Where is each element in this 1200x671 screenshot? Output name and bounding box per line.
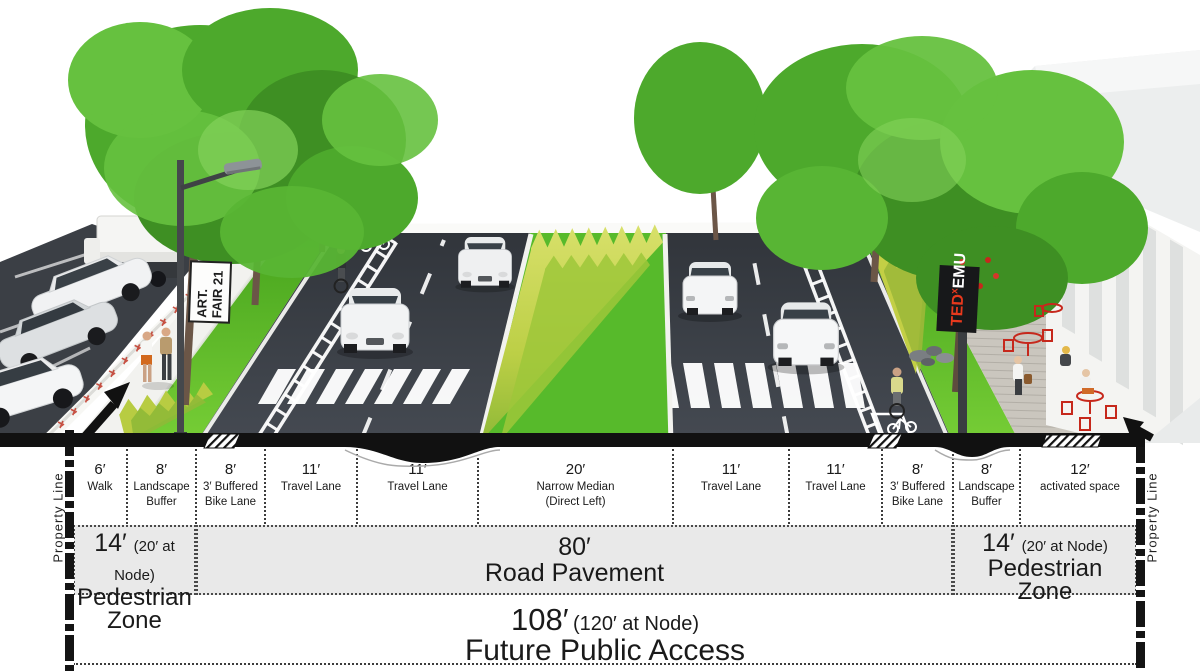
lane-bike-lane-right: 8′ 3′ Buffered Bike Lane <box>882 452 953 524</box>
cyclist <box>335 246 348 293</box>
lane-divider <box>126 449 128 524</box>
lane-divider <box>881 449 883 524</box>
pedestrians <box>141 328 174 391</box>
lane-name: Walk <box>73 481 127 493</box>
building-windows <box>1062 176 1183 445</box>
lane-travel-3: 11′ Travel Lane <box>673 452 789 524</box>
bike-lane-symbol <box>872 414 916 438</box>
rocks <box>909 346 954 366</box>
property-line-right-label: Property Line <box>1145 458 1160 578</box>
plantings <box>119 224 930 441</box>
access-arrow-right <box>1123 417 1152 438</box>
total-note: (120′ at Node) <box>573 613 699 635</box>
lane-divider <box>264 449 266 524</box>
car-rear-view <box>678 262 742 322</box>
lane-divider <box>195 449 197 524</box>
lane-landscape-buffer-left: 8′ Landscape Buffer <box>127 452 196 524</box>
car-rear-view <box>768 302 845 374</box>
tedx-banner-emu: EMU <box>951 253 970 289</box>
lane-travel-4: 11′ Travel Lane <box>789 452 882 524</box>
parked-car <box>0 348 89 435</box>
landscape-buffer-left <box>127 233 332 443</box>
art-fair-sign: ART. FAIR 21 <box>189 261 231 322</box>
tree-cluster-right <box>634 36 1148 392</box>
cyclist <box>890 368 904 419</box>
cut-hatch <box>204 434 240 448</box>
road-asphalt <box>196 233 953 443</box>
property-line-left-label: Property Line <box>51 458 66 578</box>
lane-divider <box>788 449 790 524</box>
lane-bike-lane-left: 8′ 3′ Buffered Bike Lane <box>196 452 265 524</box>
lane-divider <box>356 449 358 524</box>
future-public-access-box: 108′ (120′ at Node) Future Public Access <box>73 597 1137 665</box>
car-front-view <box>455 237 514 292</box>
parking-lot <box>0 224 198 441</box>
lane-activated-space: 12′ activated space <box>1020 452 1140 524</box>
total-name: Future Public Access <box>73 636 1137 666</box>
ground-bands <box>73 222 1140 443</box>
deck-planks <box>914 242 1134 437</box>
activated-space-deck <box>909 233 1140 443</box>
pedestrian-zone-right-box: 14′ (20′ at Node) Pedestrian Zone <box>953 525 1137 595</box>
zone-dim: 14′ <box>982 529 1015 557</box>
svg-text:TEDxEMU: TEDxEMU <box>948 253 970 327</box>
far-sidewalk <box>326 222 874 235</box>
art-wall <box>43 252 236 441</box>
lane-median: 20′ Narrow Median (Direct Left) <box>478 452 673 524</box>
lamp-head-icon <box>223 158 262 175</box>
pedestrian-zone-left-box: 14′ (20′ at Node) Pedestrian Zone <box>73 525 196 595</box>
zone-dim: 14′ <box>94 529 127 557</box>
art-fair-sign-line1: ART. <box>194 289 210 318</box>
tedx-banner-ted: TED <box>949 294 968 327</box>
total-dim: 108′ <box>511 602 569 637</box>
lane-divider <box>672 449 674 524</box>
cafe-seating <box>1004 304 1116 430</box>
lane-landscape-buffer-right: 8′ Landscape Buffer <box>953 452 1020 524</box>
lane-divider <box>1019 449 1021 524</box>
lane-travel-2: 11′ Travel Lane <box>357 452 478 524</box>
car-front-view <box>337 288 413 359</box>
median <box>478 233 673 443</box>
cut-hatch <box>1042 435 1102 447</box>
lane-divider <box>952 449 954 524</box>
lane-dim: 6′ <box>73 462 127 478</box>
parked-car <box>0 288 124 380</box>
lane-walk: 6′ Walk <box>73 452 127 524</box>
zone-dim: 80′ <box>198 533 951 562</box>
zone-note: (20′ at Node) <box>1022 538 1108 555</box>
landscape-buffer-right <box>862 233 1020 443</box>
food-truck <box>84 216 181 290</box>
lane-divider <box>477 458 479 524</box>
access-arrow-left <box>84 382 130 438</box>
tree-cluster-left <box>68 8 438 405</box>
property-line-left-dash <box>65 430 74 671</box>
road-pavement-box: 80′ Road Pavement <box>196 525 953 595</box>
tedx-banner-x: x <box>949 288 960 295</box>
lane-travel-1: 11′ Travel Lane <box>265 452 357 524</box>
bike-lane-symbol <box>361 236 389 251</box>
building <box>948 50 1200 445</box>
parked-car <box>24 244 158 336</box>
street-light <box>174 158 263 443</box>
tedx-emu-banner: TEDxEMU <box>936 253 979 443</box>
art-fair-sign-line2: FAIR 21 <box>209 270 226 318</box>
street-section-infographic: 6′ Walk 8′ Landscape Buffer 8′ 3′ Buffer… <box>0 0 1200 671</box>
road-markings <box>200 234 949 445</box>
sidewalk-band <box>73 233 284 443</box>
people-activated-space <box>1013 346 1094 395</box>
cut-hatch <box>868 434 902 448</box>
zone-name: Road Pavement <box>198 562 951 586</box>
